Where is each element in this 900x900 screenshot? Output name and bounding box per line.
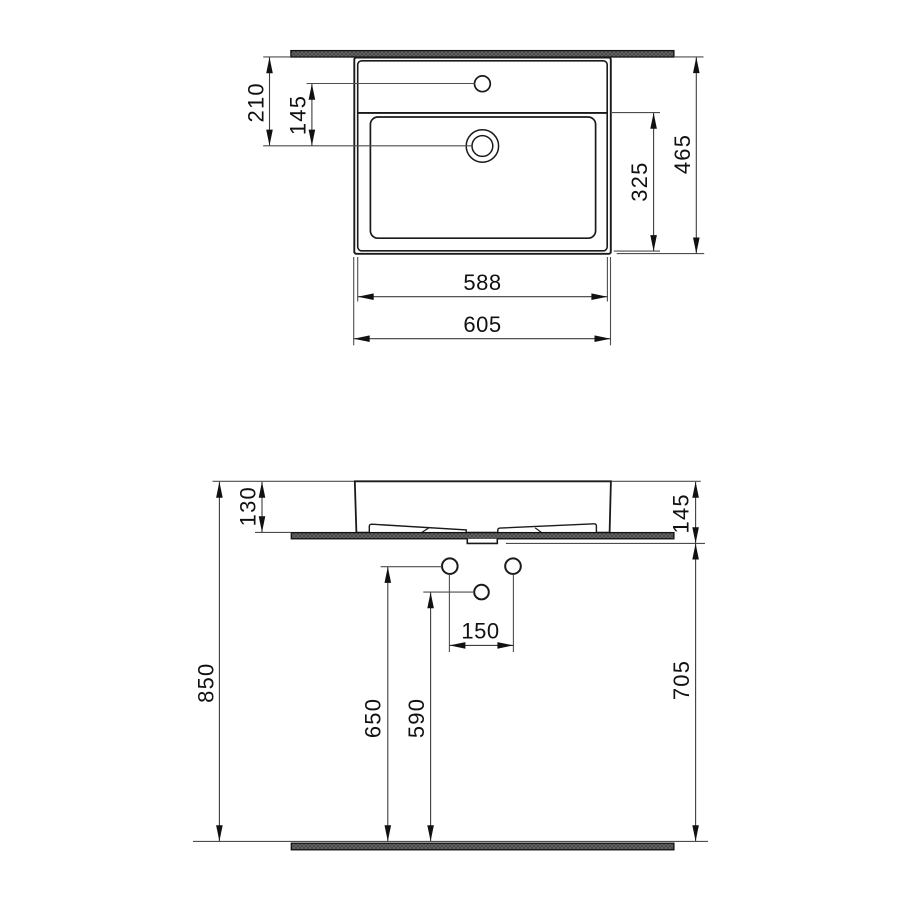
svg-text:705: 705 [669,660,694,700]
svg-text:650: 650 [361,698,386,738]
svg-text:465: 465 [670,134,695,174]
svg-text:325: 325 [627,161,652,201]
svg-text:145: 145 [669,493,694,533]
svg-text:590: 590 [404,698,429,738]
svg-text:150: 150 [461,619,499,644]
svg-text:588: 588 [463,270,501,295]
svg-text:130: 130 [235,486,260,526]
svg-text:145: 145 [286,95,311,135]
svg-text:850: 850 [193,663,218,703]
svg-text:605: 605 [463,312,501,337]
svg-text:210: 210 [243,82,268,122]
